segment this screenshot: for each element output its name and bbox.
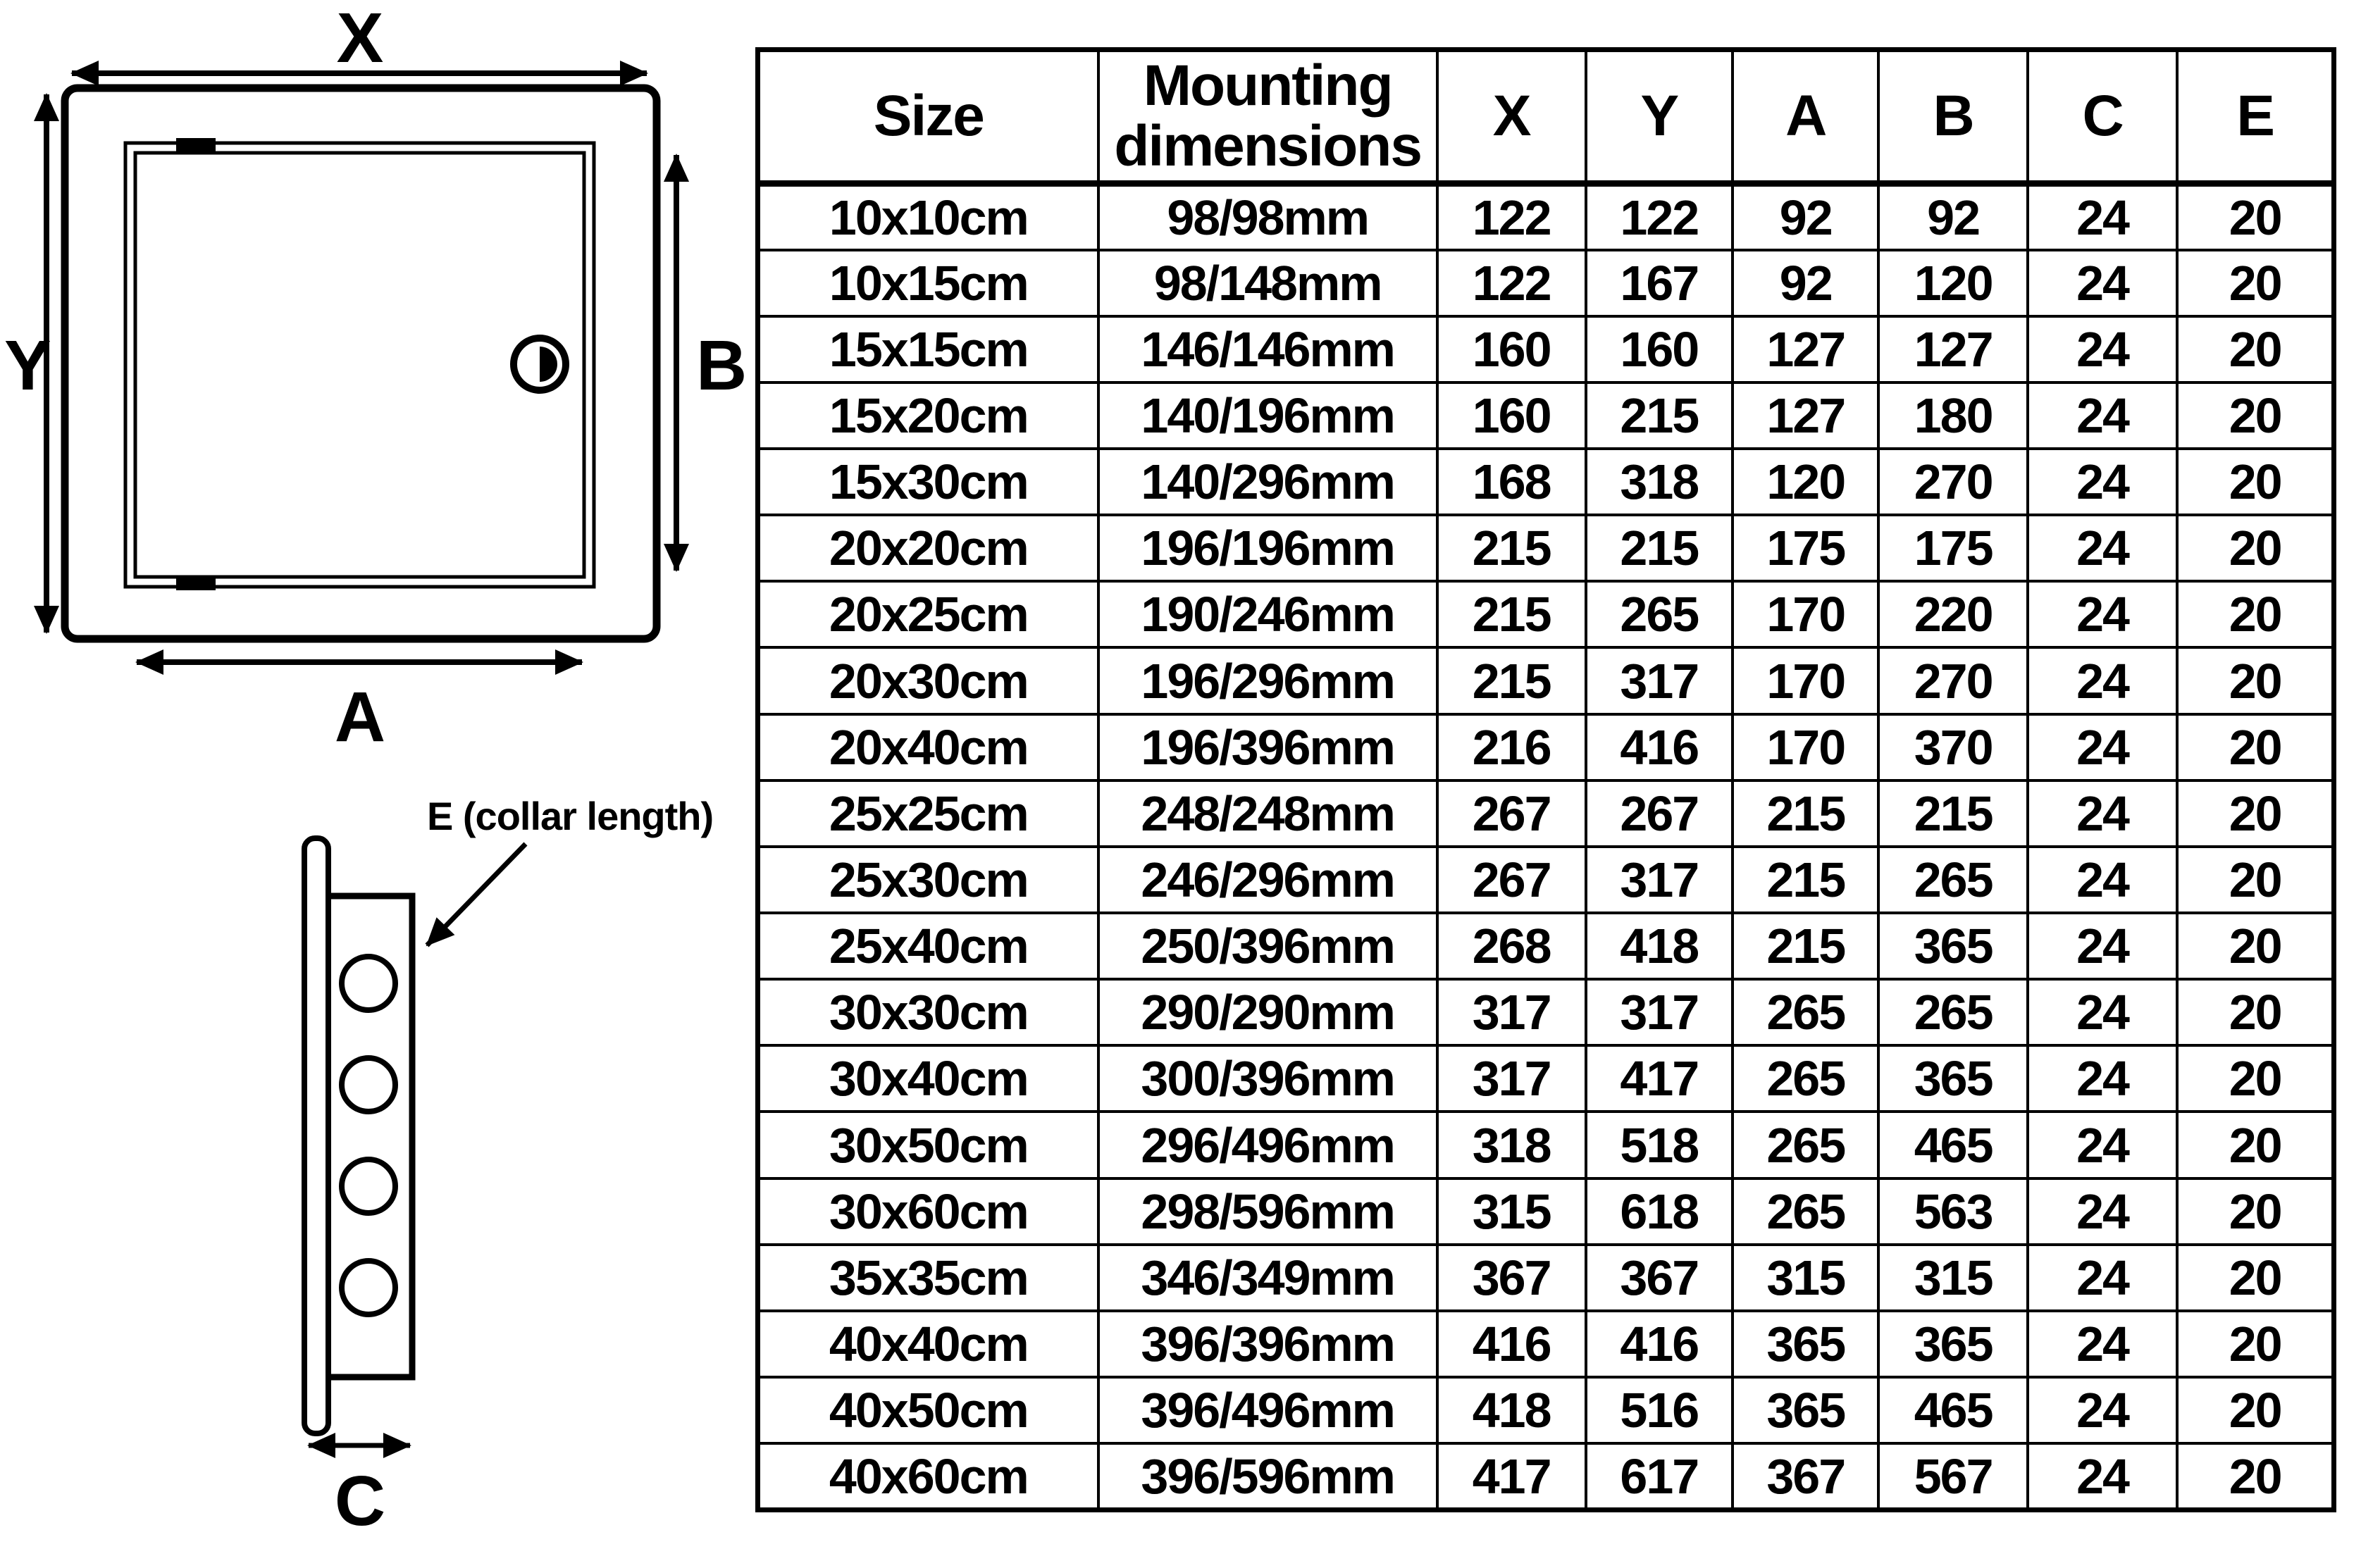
table-cell: 24 — [2028, 250, 2178, 316]
table-cell: 365 — [1733, 1311, 1878, 1377]
table-cell: 15x20cm — [758, 382, 1098, 449]
table-cell: 175 — [1878, 515, 2027, 581]
table-cell: 160 — [1437, 382, 1586, 449]
table-cell: 20x20cm — [758, 515, 1098, 581]
table-cell: 265 — [1733, 1112, 1878, 1178]
col-header-mounting: Mounting dimensions — [1098, 50, 1437, 184]
table-row: 40x60cm396/596mm4176173675672420 — [758, 1443, 2334, 1510]
table-cell: 24 — [2028, 913, 2178, 979]
table-cell: 168 — [1437, 449, 1586, 515]
table-cell: 20 — [2177, 979, 2334, 1045]
table-cell: 215 — [1586, 382, 1733, 449]
table-cell: 618 — [1586, 1178, 1733, 1245]
table-cell: 196/196mm — [1098, 515, 1437, 581]
table-cell: 24 — [2028, 1245, 2178, 1311]
table-cell: 25x40cm — [758, 913, 1098, 979]
table-cell: 370 — [1878, 714, 2027, 780]
side-view-diagram: E (collar length) C — [304, 794, 713, 1541]
table-cell: 396/596mm — [1098, 1443, 1437, 1510]
table-row: 25x40cm250/396mm2684182153652420 — [758, 913, 2334, 979]
table-cell: 317 — [1586, 979, 1733, 1045]
table-cell: 20 — [2177, 1045, 2334, 1112]
table-cell: 127 — [1733, 316, 1878, 382]
table-cell: 25x30cm — [758, 847, 1098, 913]
table-cell: 265 — [1733, 1178, 1878, 1245]
table-row: 30x30cm290/290mm3173172652652420 — [758, 979, 2334, 1045]
table-cell: 20x25cm — [758, 581, 1098, 647]
table-cell: 20 — [2177, 1245, 2334, 1311]
table-cell: 318 — [1437, 1112, 1586, 1178]
table-cell: 170 — [1733, 714, 1878, 780]
col-header-c: C — [2028, 50, 2178, 184]
table-cell: 20 — [2177, 714, 2334, 780]
table-cell: 98/98mm — [1098, 184, 1437, 250]
col-header-x: X — [1437, 50, 1586, 184]
table-cell: 518 — [1586, 1112, 1733, 1178]
table-cell: 563 — [1878, 1178, 2027, 1245]
table-cell: 317 — [1437, 1045, 1586, 1112]
table-row: 35x35cm346/349mm3673673153152420 — [758, 1245, 2334, 1311]
table-cell: 40x40cm — [758, 1311, 1098, 1377]
table-cell: 20 — [2177, 1311, 2334, 1377]
table-cell: 367 — [1733, 1443, 1878, 1510]
table-cell: 365 — [1733, 1377, 1878, 1443]
table-cell: 20 — [2177, 780, 2334, 847]
table-cell: 365 — [1878, 1045, 2027, 1112]
table-cell: 315 — [1437, 1178, 1586, 1245]
table-cell: 170 — [1733, 647, 1878, 714]
table-cell: 248/248mm — [1098, 780, 1437, 847]
table-cell: 20 — [2177, 515, 2334, 581]
table-cell: 265 — [1733, 979, 1878, 1045]
table-cell: 127 — [1733, 382, 1878, 449]
face-panel — [304, 838, 328, 1433]
table-cell: 20 — [2177, 1178, 2334, 1245]
table-cell: 465 — [1878, 1112, 2027, 1178]
dim-label-c: C — [335, 1462, 384, 1541]
collar-hole — [342, 1261, 395, 1314]
dim-label-y: Y — [4, 326, 51, 405]
table-cell: 167 — [1586, 250, 1733, 316]
table-cell: 367 — [1586, 1245, 1733, 1311]
table-cell: 10x10cm — [758, 184, 1098, 250]
table-cell: 24 — [2028, 1178, 2178, 1245]
table-cell: 290/290mm — [1098, 979, 1437, 1045]
table-row: 10x15cm98/148mm122167921202420 — [758, 250, 2334, 316]
collar-length-label: E (collar length) — [427, 794, 713, 838]
table-cell: 215 — [1437, 515, 1586, 581]
table-cell: 20 — [2177, 581, 2334, 647]
dim-label-x: X — [337, 0, 383, 77]
table-cell: 20 — [2177, 1377, 2334, 1443]
table-cell: 416 — [1437, 1311, 1586, 1377]
collar-hole — [342, 957, 395, 1010]
page-canvas: X Y B A E (collar length) — [0, 0, 2361, 1568]
table-body: 10x10cm98/98mm1221229292242010x15cm98/14… — [758, 184, 2334, 1510]
table-cell: 122 — [1437, 184, 1586, 250]
table-cell: 317 — [1586, 647, 1733, 714]
table-cell: 196/396mm — [1098, 714, 1437, 780]
table-cell: 418 — [1586, 913, 1733, 979]
table-cell: 120 — [1733, 449, 1878, 515]
col-header-y: Y — [1586, 50, 1733, 184]
table-cell: 418 — [1437, 1377, 1586, 1443]
col-header-a: A — [1733, 50, 1878, 184]
table-cell: 196/296mm — [1098, 647, 1437, 714]
table-cell: 35x35cm — [758, 1245, 1098, 1311]
table-cell: 396/396mm — [1098, 1311, 1437, 1377]
table-cell: 92 — [1733, 184, 1878, 250]
table-cell: 140/296mm — [1098, 449, 1437, 515]
table-cell: 25x25cm — [758, 780, 1098, 847]
table-cell: 268 — [1437, 913, 1586, 979]
table-cell: 365 — [1878, 1311, 2027, 1377]
table-cell: 30x40cm — [758, 1045, 1098, 1112]
table-cell: 417 — [1586, 1045, 1733, 1112]
table-cell: 215 — [1878, 780, 2027, 847]
table-row: 30x50cm296/496mm3185182654652420 — [758, 1112, 2334, 1178]
collar-hole — [342, 1159, 395, 1213]
table-cell: 122 — [1437, 250, 1586, 316]
table-cell: 175 — [1733, 515, 1878, 581]
table-cell: 265 — [1878, 847, 2027, 913]
table-row: 30x40cm300/396mm3174172653652420 — [758, 1045, 2334, 1112]
table-row: 15x15cm146/146mm1601601271272420 — [758, 316, 2334, 382]
col-header-e: E — [2177, 50, 2334, 184]
front-view-diagram: X Y B A — [4, 0, 745, 757]
dimensions-table: Size Mounting dimensions X Y A B C E 10x… — [755, 47, 2336, 1512]
table-cell: 317 — [1437, 979, 1586, 1045]
table-cell: 20 — [2177, 316, 2334, 382]
table-cell: 120 — [1878, 250, 2027, 316]
table-cell: 567 — [1878, 1443, 2027, 1510]
table-cell: 15x15cm — [758, 316, 1098, 382]
table-cell: 296/496mm — [1098, 1112, 1437, 1178]
table-cell: 20 — [2177, 647, 2334, 714]
table-cell: 40x50cm — [758, 1377, 1098, 1443]
table-cell: 20 — [2177, 847, 2334, 913]
table-cell: 265 — [1733, 1045, 1878, 1112]
table-cell: 20 — [2177, 1443, 2334, 1510]
table-cell: 24 — [2028, 382, 2178, 449]
table-cell: 396/496mm — [1098, 1377, 1437, 1443]
table-row: 30x60cm298/596mm3156182655632420 — [758, 1178, 2334, 1245]
table-cell: 417 — [1437, 1443, 1586, 1510]
table-cell: 270 — [1878, 647, 2027, 714]
table-cell: 20 — [2177, 382, 2334, 449]
table-cell: 465 — [1878, 1377, 2027, 1443]
table-cell: 146/146mm — [1098, 316, 1437, 382]
table-cell: 127 — [1878, 316, 2027, 382]
table-cell: 416 — [1586, 714, 1733, 780]
table-cell: 24 — [2028, 449, 2178, 515]
table-cell: 617 — [1586, 1443, 1733, 1510]
table-cell: 24 — [2028, 1443, 2178, 1510]
table-cell: 15x30cm — [758, 449, 1098, 515]
table-cell: 215 — [1733, 913, 1878, 979]
table-cell: 365 — [1878, 913, 2027, 979]
table-cell: 30x30cm — [758, 979, 1098, 1045]
header-row: Size Mounting dimensions X Y A B C E — [758, 50, 2334, 184]
table-cell: 516 — [1586, 1377, 1733, 1443]
table-cell: 298/596mm — [1098, 1178, 1437, 1245]
table-cell: 20x40cm — [758, 714, 1098, 780]
table-cell: 215 — [1733, 847, 1878, 913]
table-cell: 215 — [1437, 581, 1586, 647]
table-row: 15x20cm140/196mm1602151271802420 — [758, 382, 2334, 449]
table-row: 20x40cm196/396mm2164161703702420 — [758, 714, 2334, 780]
table-cell: 122 — [1586, 184, 1733, 250]
technical-drawing: X Y B A E (collar length) — [0, 0, 755, 1568]
table-cell: 20 — [2177, 913, 2334, 979]
hinge-bottom — [176, 576, 216, 590]
table-cell: 10x15cm — [758, 250, 1098, 316]
dim-label-b: B — [696, 326, 745, 405]
table-cell: 98/148mm — [1098, 250, 1437, 316]
table-cell: 24 — [2028, 184, 2178, 250]
table-cell: 24 — [2028, 647, 2178, 714]
table-row: 10x10cm98/98mm12212292922420 — [758, 184, 2334, 250]
table-cell: 318 — [1586, 449, 1733, 515]
table-row: 20x20cm196/196mm2152151751752420 — [758, 515, 2334, 581]
table-row: 25x30cm246/296mm2673172152652420 — [758, 847, 2334, 913]
table-cell: 20 — [2177, 184, 2334, 250]
table-cell: 317 — [1586, 847, 1733, 913]
table-cell: 215 — [1733, 780, 1878, 847]
table-header: Size Mounting dimensions X Y A B C E — [758, 50, 2334, 184]
table-cell: 180 — [1878, 382, 2027, 449]
table-cell: 220 — [1878, 581, 2027, 647]
table-cell: 267 — [1437, 847, 1586, 913]
table-cell: 24 — [2028, 780, 2178, 847]
table-cell: 250/396mm — [1098, 913, 1437, 979]
table-cell: 24 — [2028, 1045, 2178, 1112]
hinge-top — [176, 138, 216, 152]
table-cell: 416 — [1586, 1311, 1733, 1377]
table-cell: 92 — [1733, 250, 1878, 316]
table-cell: 246/296mm — [1098, 847, 1437, 913]
table-cell: 346/349mm — [1098, 1245, 1437, 1311]
table-row: 40x50cm396/496mm4185163654652420 — [758, 1377, 2334, 1443]
table-cell: 160 — [1586, 316, 1733, 382]
table-cell: 265 — [1878, 979, 2027, 1045]
table-cell: 315 — [1733, 1245, 1878, 1311]
table-cell: 24 — [2028, 847, 2178, 913]
table-cell: 30x50cm — [758, 1112, 1098, 1178]
table-row: 25x25cm248/248mm2672672152152420 — [758, 780, 2334, 847]
table-cell: 267 — [1437, 780, 1586, 847]
col-header-b: B — [1878, 50, 2027, 184]
table-cell: 216 — [1437, 714, 1586, 780]
table-row: 20x25cm190/246mm2152651702202420 — [758, 581, 2334, 647]
table-cell: 20 — [2177, 250, 2334, 316]
table-cell: 315 — [1878, 1245, 2027, 1311]
table-row: 15x30cm140/296mm1683181202702420 — [758, 449, 2334, 515]
table-cell: 367 — [1437, 1245, 1586, 1311]
table-cell: 20 — [2177, 1112, 2334, 1178]
table-cell: 270 — [1878, 449, 2027, 515]
collar-pointer-arrow — [427, 844, 526, 945]
table-cell: 24 — [2028, 316, 2178, 382]
table-cell: 24 — [2028, 1377, 2178, 1443]
collar-hole — [342, 1058, 395, 1112]
table-cell: 160 — [1437, 316, 1586, 382]
table-row: 40x40cm396/396mm4164163653652420 — [758, 1311, 2334, 1377]
table-cell: 215 — [1437, 647, 1586, 714]
table-cell: 30x60cm — [758, 1178, 1098, 1245]
table-cell: 24 — [2028, 1112, 2178, 1178]
dim-label-a: A — [335, 678, 384, 757]
table-cell: 267 — [1586, 780, 1733, 847]
table-cell: 24 — [2028, 1311, 2178, 1377]
table-cell: 215 — [1586, 515, 1733, 581]
table-cell: 300/396mm — [1098, 1045, 1437, 1112]
table-cell: 24 — [2028, 714, 2178, 780]
table-cell: 24 — [2028, 515, 2178, 581]
table-cell: 170 — [1733, 581, 1878, 647]
table-cell: 265 — [1586, 581, 1733, 647]
table-row: 20x30cm196/296mm2153171702702420 — [758, 647, 2334, 714]
table-cell: 20x30cm — [758, 647, 1098, 714]
table-cell: 24 — [2028, 979, 2178, 1045]
col-header-size: Size — [758, 50, 1098, 184]
table-cell: 140/196mm — [1098, 382, 1437, 449]
table-cell: 20 — [2177, 449, 2334, 515]
table-cell: 190/246mm — [1098, 581, 1437, 647]
table-cell: 92 — [1878, 184, 2027, 250]
table-cell: 40x60cm — [758, 1443, 1098, 1510]
table-cell: 24 — [2028, 581, 2178, 647]
